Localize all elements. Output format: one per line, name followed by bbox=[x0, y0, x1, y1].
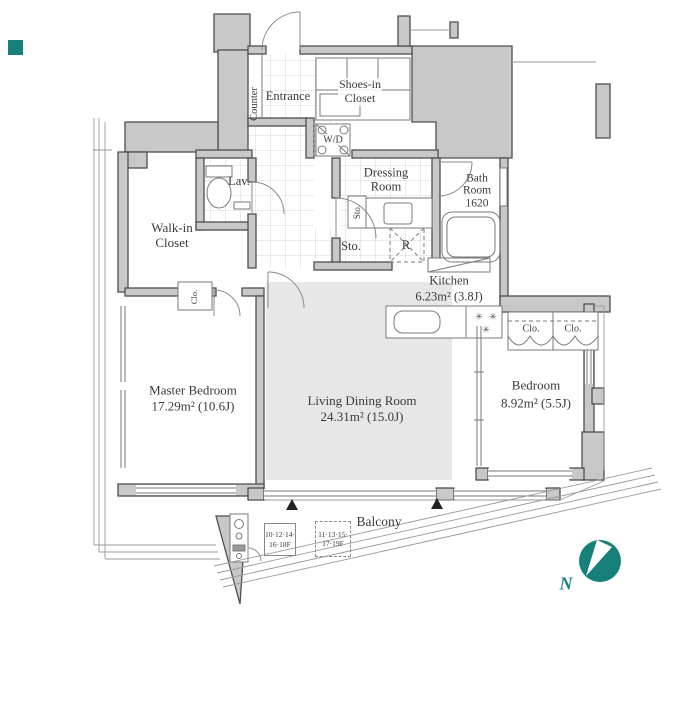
label-bath-room: Bath Room 1620 bbox=[463, 172, 491, 209]
label-shoes-closet: Shoes-in Closet bbox=[338, 78, 382, 106]
sink-icon bbox=[394, 311, 440, 333]
label-lav: Lav. bbox=[228, 174, 250, 188]
label-entrance: Entrance bbox=[266, 89, 310, 103]
floor-box-dashed: 11·13·15· 17·19F bbox=[315, 521, 351, 557]
label-balcony: Balcony bbox=[357, 514, 402, 530]
vanity-fixture bbox=[366, 198, 432, 228]
balcony-hatch-door bbox=[248, 548, 261, 561]
bathtub-icon bbox=[442, 212, 500, 262]
north-compass-icon bbox=[579, 540, 621, 582]
burner-icon: ✳ bbox=[489, 312, 497, 323]
label-bedroom: Bedroom 8.92m² (5.5J) bbox=[501, 376, 571, 411]
hood-fixture bbox=[428, 258, 490, 272]
floor-box-solid: 10·12·14· 16·18F bbox=[264, 523, 296, 556]
walkin-door bbox=[214, 290, 240, 316]
burner-icon: ✳ bbox=[482, 325, 490, 336]
legend-square bbox=[8, 40, 23, 55]
label-wd: W/D bbox=[322, 134, 343, 146]
label-clo-walkin: Clo. bbox=[190, 290, 200, 304]
burner-icon: ✳ bbox=[475, 312, 483, 323]
floor-plan-canvas bbox=[0, 0, 674, 707]
label-living-dining: Living Dining Room 24.31m² (15.0J) bbox=[307, 393, 416, 426]
sliding-partition bbox=[474, 326, 484, 466]
label-clo-right: Clo. bbox=[565, 323, 582, 335]
label-refrigerator: R bbox=[402, 238, 410, 252]
label-kitchen: Kitchen 6.23m² (3.8J) bbox=[415, 273, 482, 304]
north-label: N bbox=[560, 574, 573, 595]
entrance-door bbox=[262, 12, 300, 50]
label-master-bedroom: Master Bedroom 17.29m² (10.6J) bbox=[149, 382, 237, 413]
label-sto: Sto. bbox=[341, 239, 361, 253]
meter-panel bbox=[230, 514, 248, 562]
bath-window bbox=[500, 168, 507, 206]
label-walkin-closet: Walk-in Closet bbox=[151, 221, 193, 251]
triangle-marker bbox=[286, 499, 298, 510]
label-clo-left: Clo. bbox=[523, 323, 540, 335]
label-counter: Counter bbox=[249, 87, 261, 121]
label-sto-tall: Sto. bbox=[352, 205, 362, 219]
closet-strip bbox=[508, 312, 598, 350]
label-dressing-room: Dressing Room bbox=[364, 166, 408, 195]
floor-plan: Counter Entrance Shoes-in Closet W/D Lav… bbox=[0, 0, 674, 707]
